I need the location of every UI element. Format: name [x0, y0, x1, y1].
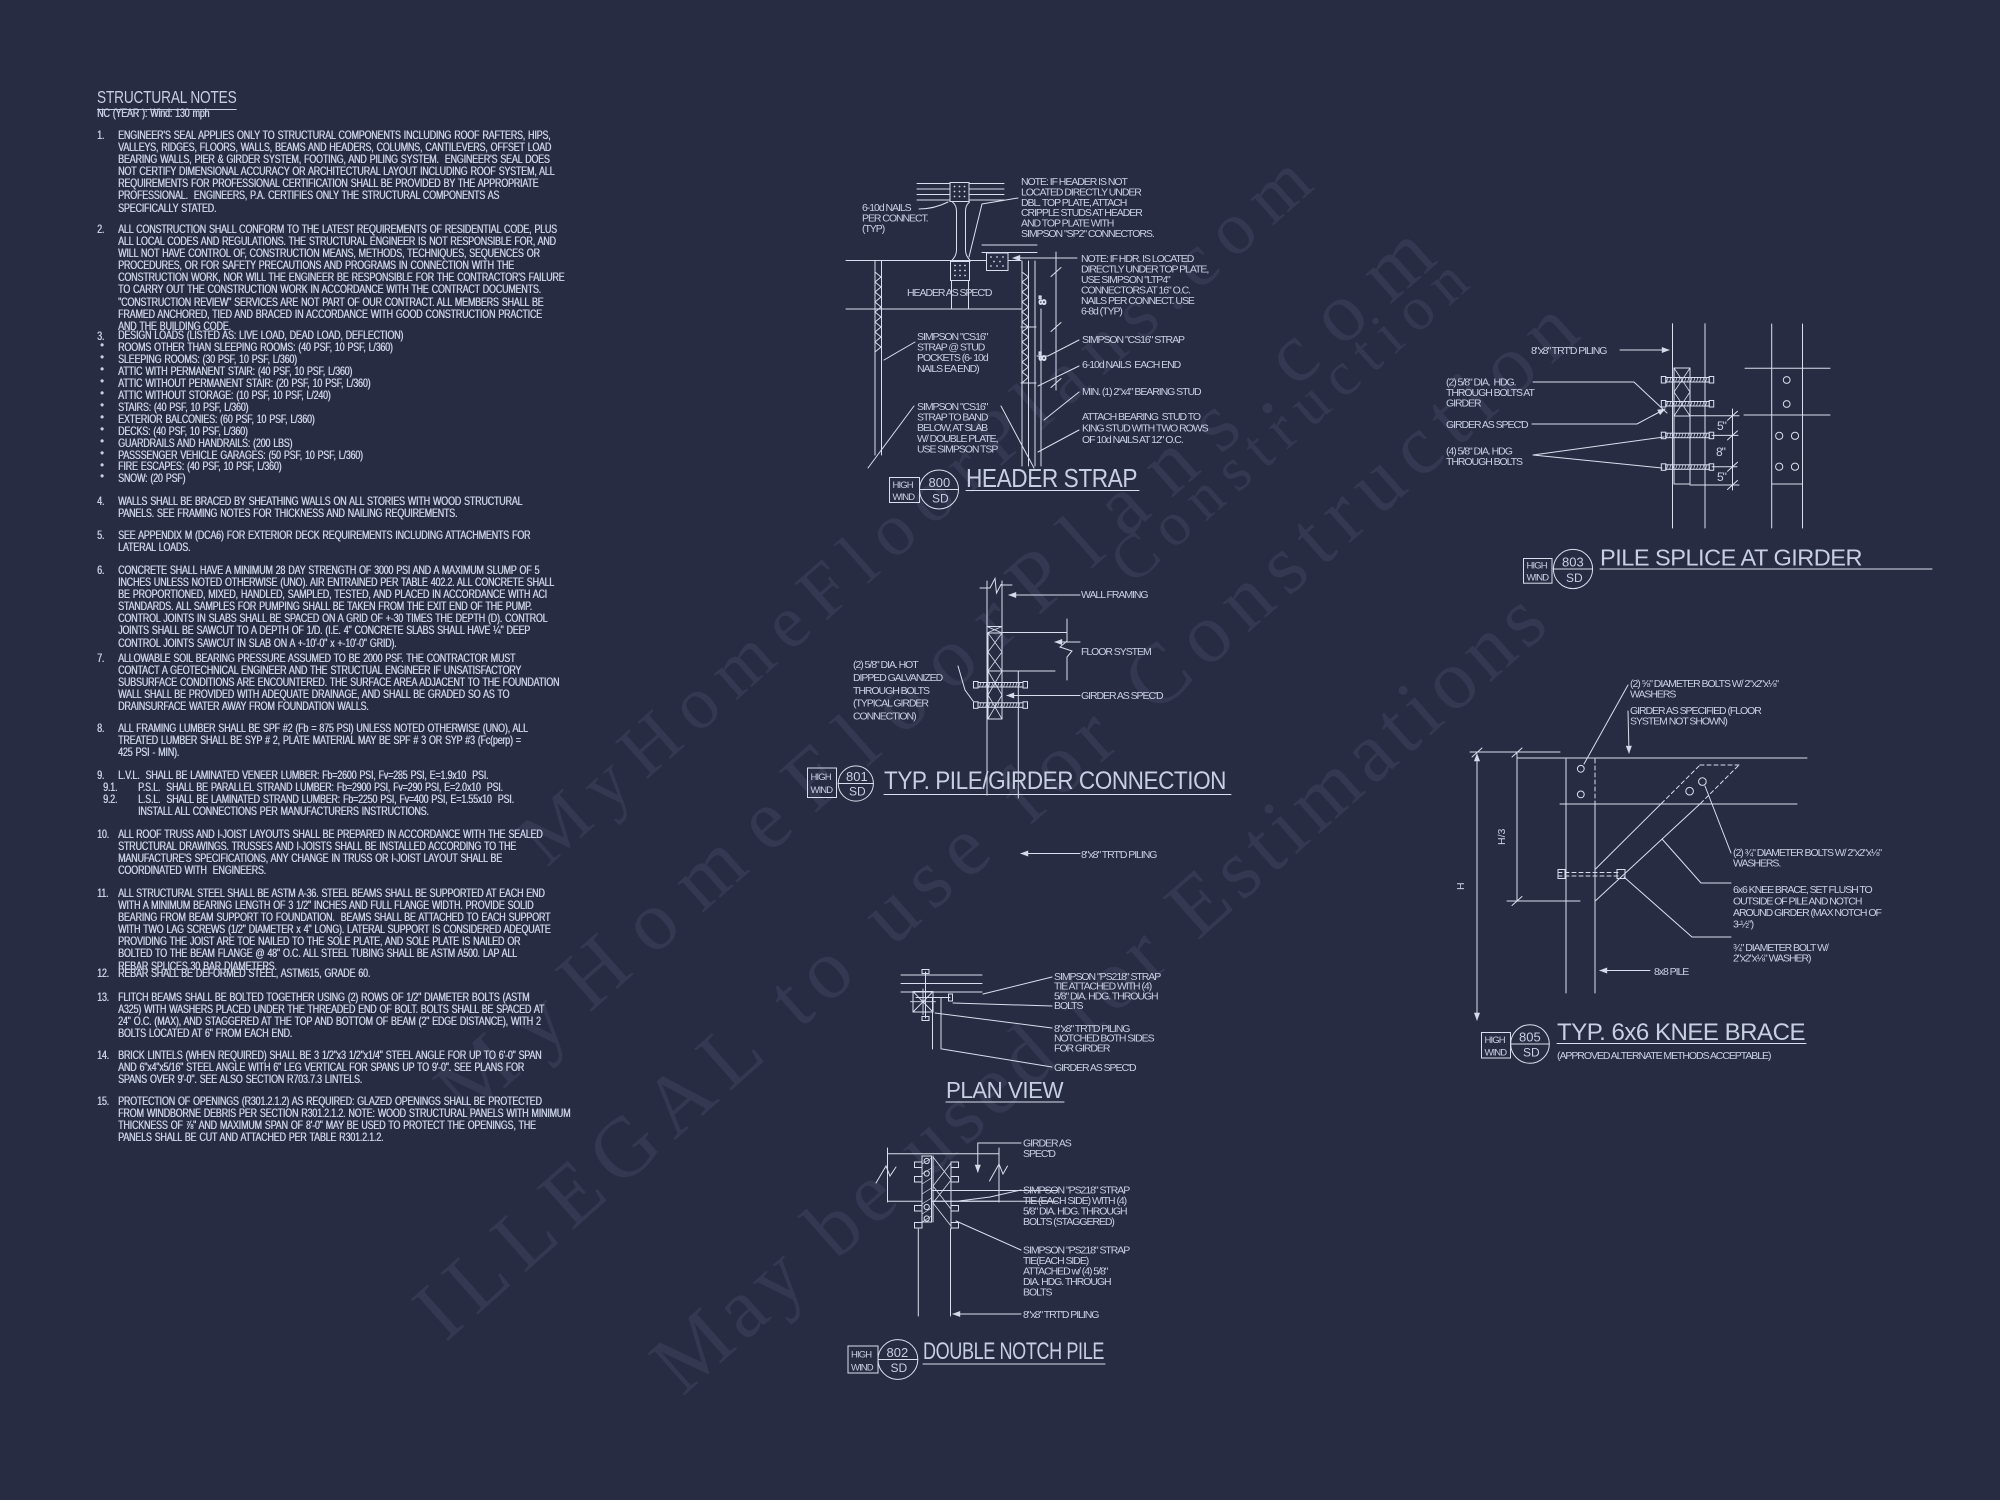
svg-text:DIPPED GALVANIZED: DIPPED GALVANIZED: [853, 672, 944, 684]
svg-text:805: 805: [1519, 1030, 1541, 1045]
svg-text:2"x2"x⅛" WASHER): 2"x2"x⅛" WASHER): [1733, 953, 1811, 965]
svg-text:WASHERS.: WASHERS.: [1733, 858, 1780, 870]
svg-text:WASHERS: WASHERS: [1630, 689, 1676, 701]
svg-text:HIGH: HIGH: [851, 1350, 872, 1361]
svg-text:6-10d NAILS EACH END: 6-10d NAILS EACH END: [1082, 359, 1182, 371]
svg-text:(TYP): (TYP): [862, 223, 885, 235]
svg-text:BOLTS: BOLTS: [1023, 1287, 1052, 1299]
svg-text:WIND: WIND: [1485, 1048, 1508, 1059]
svg-text:HIGH: HIGH: [893, 480, 914, 491]
svg-text:(2) 5/8" DIA. HOT: (2) 5/8" DIA. HOT: [853, 659, 919, 671]
svg-text:HEADER AS SPEC'D: HEADER AS SPEC'D: [907, 287, 993, 299]
svg-text:BOLTS (STAGGERED): BOLTS (STAGGERED): [1023, 1216, 1114, 1228]
svg-text:3-½"): 3-½"): [1733, 919, 1754, 931]
svg-text:PILE SPLICE AT GIRDER: PILE SPLICE AT GIRDER: [1600, 545, 1862, 571]
svg-text:THROUGH BOLTS: THROUGH BOLTS: [1446, 456, 1523, 468]
svg-text:FOR GIRDER: FOR GIRDER: [1054, 1042, 1111, 1054]
svg-text:HIGH: HIGH: [1527, 561, 1548, 572]
svg-text:OUTSIDE OF PILE AND NOTCH: OUTSIDE OF PILE AND NOTCH: [1733, 896, 1862, 908]
svg-text:SD: SD: [849, 785, 866, 799]
svg-text:AROUND GIRDER (MAX NOTCH OF: AROUND GIRDER (MAX NOTCH OF: [1733, 907, 1881, 919]
svg-text:H/3: H/3: [1496, 829, 1508, 846]
svg-text:SPEC'D: SPEC'D: [1023, 1148, 1056, 1160]
svg-text:CONNECTION): CONNECTION): [853, 711, 916, 723]
svg-text:6-8d (TYP): 6-8d (TYP): [1081, 306, 1122, 318]
svg-text:WIND: WIND: [1527, 573, 1550, 584]
svg-text:NAILS EA END): NAILS EA END): [917, 363, 979, 375]
svg-text:WIND: WIND: [811, 785, 834, 796]
svg-text:H: H: [1455, 882, 1467, 890]
svg-text:8": 8": [1716, 445, 1726, 459]
svg-text:USE SIMPSON TSP: USE SIMPSON TSP: [917, 443, 998, 455]
svg-text:WALL FRAMING: WALL FRAMING: [1081, 589, 1148, 601]
svg-text:6x6 KNEE BRACE, SET FLUSH TO: 6x6 KNEE BRACE, SET FLUSH TO: [1733, 884, 1873, 896]
svg-text:MIN. (1) 2"x4" BEARING STUD: MIN. (1) 2"x4" BEARING STUD: [1082, 386, 1202, 398]
svg-text:THROUGH BOLTS: THROUGH BOLTS: [853, 685, 930, 697]
svg-text:FLOOR SYSTEM: FLOOR SYSTEM: [1081, 646, 1151, 658]
svg-text:GIRDER AS SPEC'D: GIRDER AS SPEC'D: [1446, 419, 1529, 431]
svg-text:SIMPSON "SP2" CONNECTORS.: SIMPSON "SP2" CONNECTORS.: [1021, 228, 1154, 240]
svg-text:802: 802: [887, 1345, 909, 1360]
svg-text:GIRDER AS SPEC'D: GIRDER AS SPEC'D: [1054, 1062, 1137, 1074]
svg-text:8": 8": [1037, 295, 1049, 305]
svg-text:SD: SD: [1566, 571, 1583, 585]
svg-text:803: 803: [1562, 555, 1584, 570]
svg-text:801: 801: [846, 769, 868, 784]
svg-text:HIGH: HIGH: [1485, 1035, 1506, 1046]
svg-text:BOLTS: BOLTS: [1054, 1000, 1083, 1012]
svg-text:HEADER STRAP: HEADER STRAP: [966, 463, 1137, 493]
svg-text:SIMPSON "CS16" STRAP: SIMPSON "CS16" STRAP: [1082, 334, 1185, 346]
svg-text:SD: SD: [1523, 1046, 1540, 1060]
svg-text:WIND: WIND: [893, 492, 916, 503]
svg-text:(TYPICAL GIRDER: (TYPICAL GIRDER: [853, 698, 929, 710]
svg-text:SD: SD: [891, 1361, 908, 1375]
svg-text:TYP. PILE/GIRDER CONNECTION: TYP. PILE/GIRDER CONNECTION: [884, 767, 1226, 795]
svg-text:5": 5": [1717, 470, 1727, 484]
svg-text:KING STUD WITH TWO ROWS: KING STUD WITH TWO ROWS: [1082, 423, 1209, 435]
svg-text:HIGH: HIGH: [811, 772, 832, 783]
svg-text:5": 5": [1717, 419, 1727, 433]
svg-text:8"x8" TRT'D PILING: 8"x8" TRT'D PILING: [1531, 345, 1607, 357]
svg-text:PLAN VIEW: PLAN VIEW: [946, 1077, 1064, 1103]
svg-text:GIRDER AS SPEC'D: GIRDER AS SPEC'D: [1081, 690, 1164, 702]
svg-text:ATTACH BEARING STUD TO: ATTACH BEARING STUD TO: [1082, 411, 1201, 423]
svg-text:GIRDER: GIRDER: [1446, 397, 1482, 409]
svg-text:(APPROVED ALTERNATE METHODS AC: (APPROVED ALTERNATE METHODS ACCEPTABLE): [1557, 1050, 1771, 1062]
svg-text:OF 10d NAILS AT 12" O.C.: OF 10d NAILS AT 12" O.C.: [1082, 434, 1183, 446]
svg-text:SYSTEM NOT SHOWN): SYSTEM NOT SHOWN): [1630, 716, 1727, 728]
svg-text:SD: SD: [932, 492, 949, 506]
svg-text:8"x8" TRT'D PILING: 8"x8" TRT'D PILING: [1081, 849, 1157, 861]
svg-text:DOUBLE NOTCH PILE: DOUBLE NOTCH PILE: [923, 1338, 1104, 1365]
svg-text:800: 800: [929, 475, 951, 490]
svg-text:8"x8" TRT'D PILING: 8"x8" TRT'D PILING: [1023, 1309, 1099, 1321]
svg-text:WIND: WIND: [851, 1363, 874, 1374]
svg-text:8x8 PILE: 8x8 PILE: [1654, 966, 1689, 978]
svg-text:TYP. 6x6 KNEE BRACE: TYP. 6x6 KNEE BRACE: [1557, 1019, 1805, 1046]
